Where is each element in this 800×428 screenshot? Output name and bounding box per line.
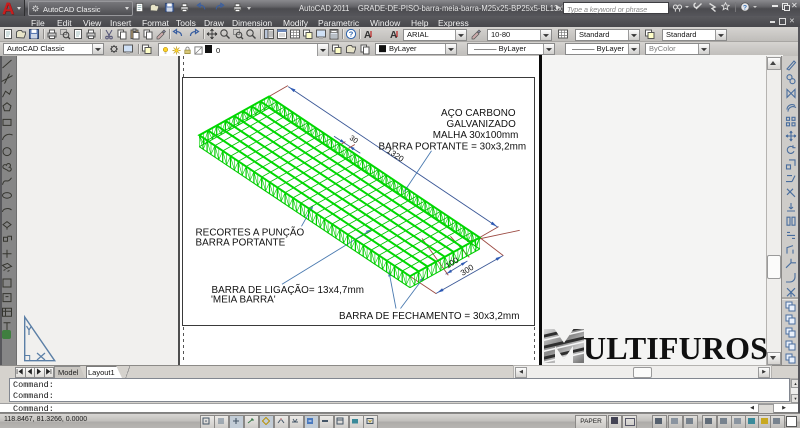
svg-text:A: A [364,30,371,40]
svg-text:GALVANIZADO: GALVANIZADO [447,119,517,130]
svg-text:'MEIA BARRA': 'MEIA BARRA' [211,294,276,305]
svg-text:?: ? [743,4,747,11]
svg-text:?: ? [349,30,354,39]
svg-text:A: A [390,30,397,40]
svg-text:BARRA DE FECHAMENTO = 30x3,2mm: BARRA DE FECHAMENTO = 30x3,2mm [339,311,519,322]
svg-text:AÇO CARBONO: AÇO CARBONO [441,108,516,119]
svg-text:MALHA 30x100mm: MALHA 30x100mm [433,130,519,141]
svg-text:BARRA PORTANTE: BARRA PORTANTE [196,237,286,248]
svg-text:30: 30 [348,133,360,145]
svg-text:BARRA PORTANTE = 30x3,2mm: BARRA PORTANTE = 30x3,2mm [379,141,527,152]
